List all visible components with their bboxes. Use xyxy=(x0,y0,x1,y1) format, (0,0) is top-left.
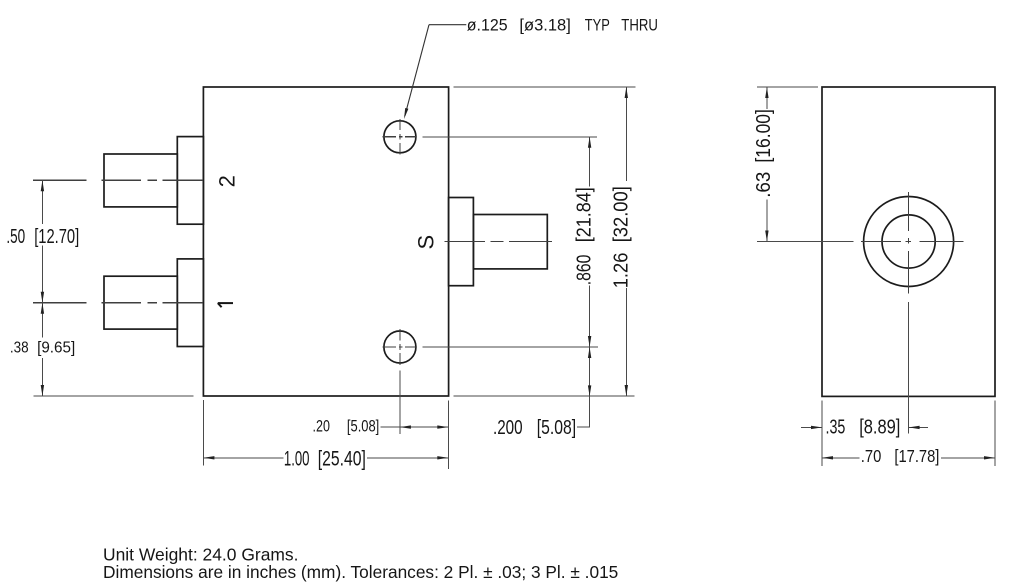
svg-text:[21.84]: [21.84] xyxy=(574,187,596,242)
svg-text:.70: .70 xyxy=(861,446,882,466)
svg-text:2: 2 xyxy=(214,175,239,187)
svg-text:.200: .200 xyxy=(493,417,523,439)
svg-text:.38: .38 xyxy=(10,339,29,356)
svg-text:[16.00]: [16.00] xyxy=(753,109,775,163)
svg-text:[8.89]: [8.89] xyxy=(859,416,900,438)
svg-text:ø.125: ø.125 xyxy=(467,16,508,35)
svg-text:[ø3.18]: [ø3.18] xyxy=(519,16,570,35)
svg-text:TYP: TYP xyxy=(585,16,610,35)
svg-text:THRU: THRU xyxy=(621,16,658,35)
svg-text:S: S xyxy=(414,235,439,250)
svg-text:[12.70]: [12.70] xyxy=(34,226,79,248)
svg-text:[5.08]: [5.08] xyxy=(537,417,576,439)
svg-text:[32.00]: [32.00] xyxy=(610,186,632,242)
svg-text:[5.08]: [5.08] xyxy=(347,417,379,435)
svg-text:.50: .50 xyxy=(6,226,25,248)
svg-text:[9.65]: [9.65] xyxy=(37,339,75,356)
svg-text:.20: .20 xyxy=(313,417,330,435)
svg-text:[17.78]: [17.78] xyxy=(894,446,939,466)
svg-text:.860: .860 xyxy=(574,255,596,286)
svg-text:Dimensions are in inches (mm).: Dimensions are in inches (mm). Tolerance… xyxy=(103,562,618,582)
svg-text:.35: .35 xyxy=(826,416,846,438)
svg-text:.63: .63 xyxy=(753,172,775,198)
svg-text:1.26: 1.26 xyxy=(610,253,632,289)
svg-text:1.00: 1.00 xyxy=(284,447,310,470)
svg-text:[25.40]: [25.40] xyxy=(318,447,366,470)
